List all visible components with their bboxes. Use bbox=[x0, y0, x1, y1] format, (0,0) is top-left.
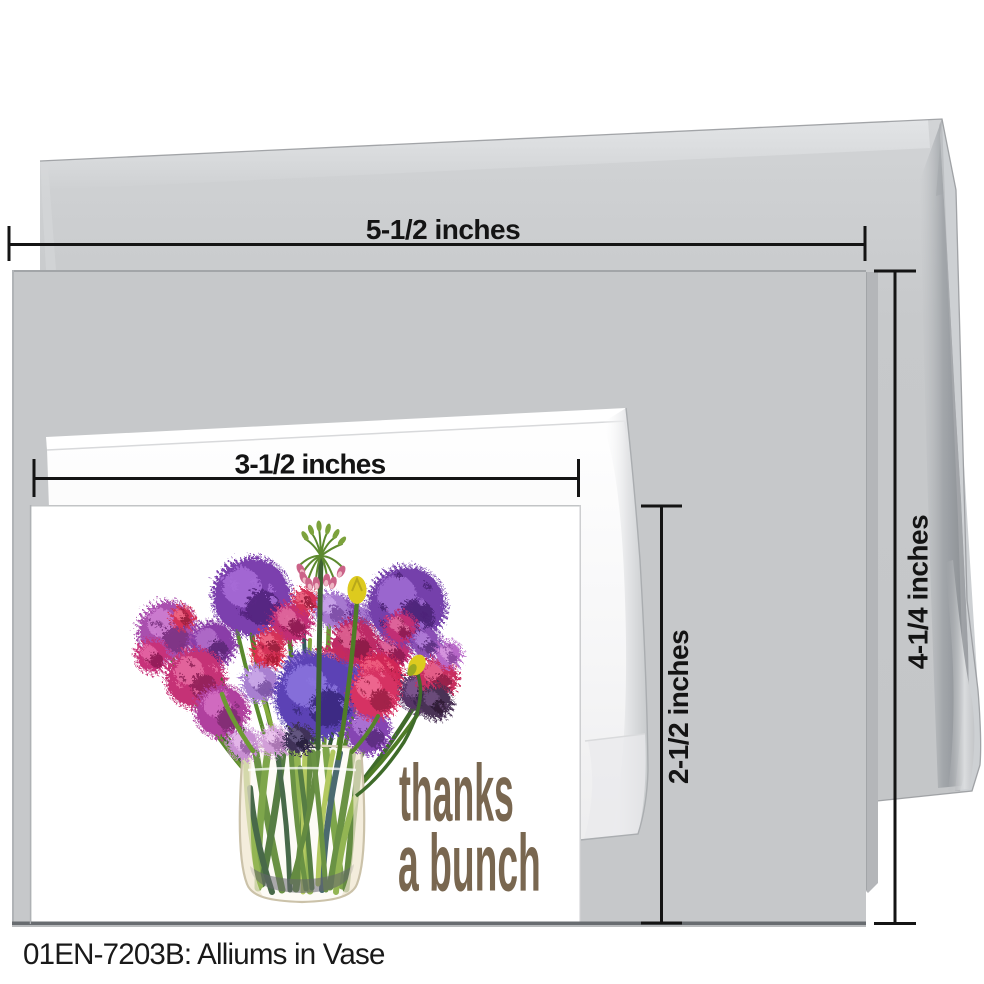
svg-text:01EN-7203B: Alliums in Vase: 01EN-7203B: Alliums in Vase bbox=[23, 938, 385, 971]
svg-text:a bunch: a bunch bbox=[398, 819, 541, 909]
svg-text:4-1/4 inches: 4-1/4 inches bbox=[903, 515, 934, 669]
svg-text:2-1/2 inches: 2-1/2 inches bbox=[663, 630, 694, 784]
svg-text:5-1/2 inches: 5-1/2 inches bbox=[366, 214, 520, 245]
svg-text:3-1/2 inches: 3-1/2 inches bbox=[235, 449, 386, 480]
